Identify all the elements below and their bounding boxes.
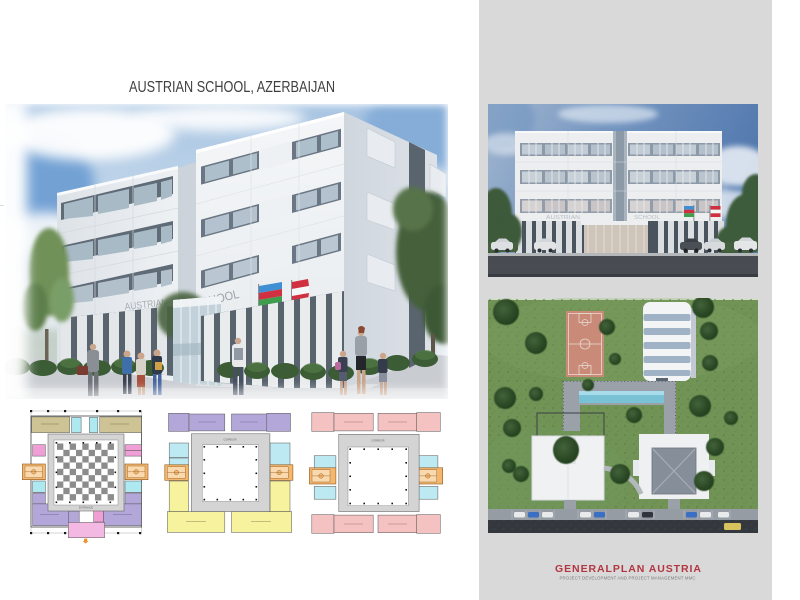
svg-text:ENTRANCE: ENTRANCE <box>79 506 94 510</box>
svg-text:SCHOOL: SCHOOL <box>634 215 660 221</box>
svg-text:AUSTRIAN SCHOOL, AZERBAIJAN: AUSTRIAN SCHOOL, AZERBAIJAN <box>129 79 335 96</box>
svg-text:AUSTRIAN: AUSTRIAN <box>546 215 581 221</box>
svg-text:GENERALPLAN AUSTRIA: GENERALPLAN AUSTRIA <box>555 563 703 575</box>
svg-text:PROJECT DEVELOPMENT AND PROJEC: PROJECT DEVELOPMENT AND PROJECT MANAGEME… <box>560 576 697 581</box>
svg-text:CORRIDOR: CORRIDOR <box>223 439 236 442</box>
svg-text:CORRIDOR: CORRIDOR <box>371 440 384 443</box>
